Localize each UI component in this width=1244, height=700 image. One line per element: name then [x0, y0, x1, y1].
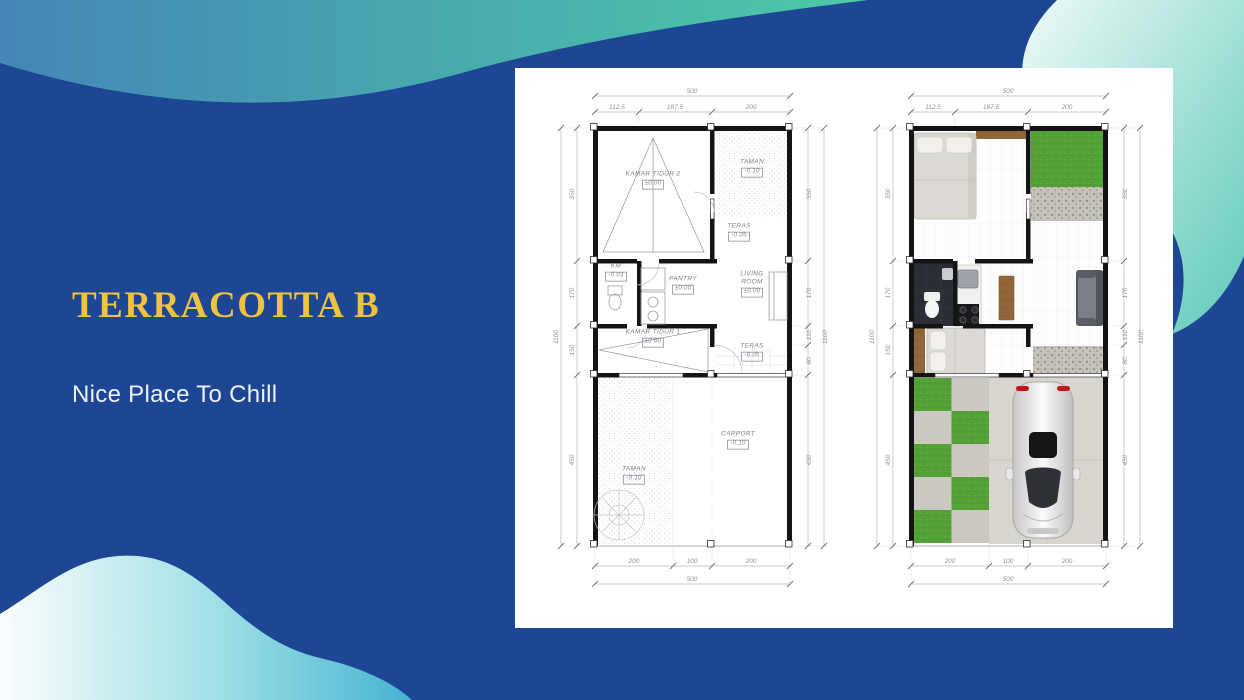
floorplan-panel: 500 112.5 187.5 200 200 100 200 500 1100…: [515, 68, 1173, 628]
room-label-pantry: PANTRY ±0.00: [652, 276, 714, 295]
dim-label: 200: [944, 558, 956, 565]
dim-label: 100: [687, 558, 698, 565]
dim-label: 350: [885, 188, 892, 199]
technical-plan: 500 112.5 187.5 200 200 100 200 500 1100…: [531, 80, 853, 615]
bathroom: [911, 263, 955, 326]
dim-label: 200: [745, 558, 757, 565]
dim-label: 200: [628, 558, 640, 565]
bed-icon: [914, 133, 976, 219]
room-label-km: KM -0.03: [585, 263, 647, 282]
elevation-badge: ±0.00: [642, 338, 665, 348]
dim-label: 150: [569, 344, 576, 355]
dim-label: 110: [806, 329, 813, 340]
toilet-icon: [924, 292, 940, 318]
room-label-carport: CARPORT -0.10: [707, 431, 769, 450]
dim-label: 1100: [1138, 330, 1145, 344]
dim-label: 112.5: [609, 104, 625, 111]
slide: { "slide": { "title": "TERRACOTTA B", "s…: [0, 0, 1244, 700]
dim-label: 187.5: [983, 104, 1000, 111]
dim-label: 200: [745, 104, 757, 111]
elevation-badge: -0.05: [741, 352, 762, 362]
dim-label: 80: [806, 357, 813, 365]
gravel-area: [1033, 346, 1103, 374]
sofa-icon: [1076, 270, 1104, 326]
dim-label: 112.5: [925, 104, 941, 111]
dim-label: 1100: [869, 330, 876, 344]
dim-label: 450: [885, 454, 892, 465]
elevation-badge: ±0.00: [672, 285, 695, 295]
dim-label: 450: [569, 454, 576, 465]
elevation-badge: -0.05: [728, 232, 749, 242]
dim-label: 1100: [822, 330, 829, 344]
room-label-living-room: LIVING ROOM ±0.00: [729, 271, 775, 298]
elevation-badge: -0.10: [741, 168, 762, 178]
stove-icon: [957, 304, 979, 326]
dim-label: 170: [806, 287, 813, 298]
dim-label: 350: [806, 188, 813, 199]
bed-symbol: [603, 138, 704, 252]
wood-cabinet: [976, 130, 1028, 139]
toilet-icon: [608, 286, 622, 310]
room-label-teras-top: TERAS -0.05: [708, 223, 770, 242]
dim-label: 450: [1122, 454, 1129, 465]
dim-label: 450: [806, 454, 813, 465]
checker-garden: [914, 378, 989, 543]
rendered-plan: 500 112.5 187.5 200 200 100 200 500 1100…: [847, 80, 1169, 615]
dim-label: 200: [1061, 104, 1073, 111]
car-icon: [1006, 382, 1080, 538]
bed-icon: [927, 328, 985, 374]
room-label-taman-top: TAMAN -0.10: [721, 159, 783, 178]
dim-label: 80: [1122, 357, 1129, 365]
elevation-badge: ±0.00: [642, 180, 665, 190]
dim-label: 500: [1003, 576, 1014, 583]
fridge-icon: [958, 270, 978, 288]
gravel-area: [1031, 187, 1104, 221]
dim-label: 350: [1122, 188, 1129, 199]
dim-label: 200: [1061, 558, 1073, 565]
dim-label: 110: [1122, 329, 1129, 340]
room-label-taman-bottom: TAMAN -0.10: [603, 466, 665, 485]
page-subtitle: Nice Place To Chill: [72, 381, 277, 409]
wardrobe: [914, 328, 925, 373]
page-title: TERRACOTTA B: [72, 284, 380, 327]
grass-area: [1031, 130, 1104, 187]
dim-label: 350: [569, 188, 576, 199]
dim-label: 170: [569, 287, 576, 298]
elevation-badge: -0.10: [727, 440, 748, 450]
elevation-badge: -0.10: [623, 475, 644, 485]
room-label-kamar-tidur-2: KAMAR TIDUR 2 ±0.00: [622, 171, 684, 190]
dim-label: 150: [885, 344, 892, 355]
dim-label: 187.5: [667, 104, 684, 111]
dim-label: 500: [687, 88, 698, 95]
room-label-kamar-tidur-1: KAMAR TIDUR 1 ±0.00: [622, 329, 684, 348]
wave-shape-bottom-left: [0, 556, 412, 700]
dim-label: 1100: [553, 330, 560, 344]
sink-icon: [942, 268, 953, 280]
dim-label: 500: [1003, 88, 1014, 95]
dim-label: 170: [885, 287, 892, 298]
elevation-badge: -0.03: [605, 272, 626, 282]
elevation-badge: ±0.00: [741, 288, 764, 298]
dim-label: 170: [1122, 287, 1129, 298]
dim-label: 500: [687, 576, 698, 583]
room-label-teras-bottom: TERAS -0.05: [721, 343, 783, 362]
island-counter: [999, 276, 1014, 320]
dim-label: 100: [1003, 558, 1014, 565]
tree-icon: [594, 490, 644, 540]
